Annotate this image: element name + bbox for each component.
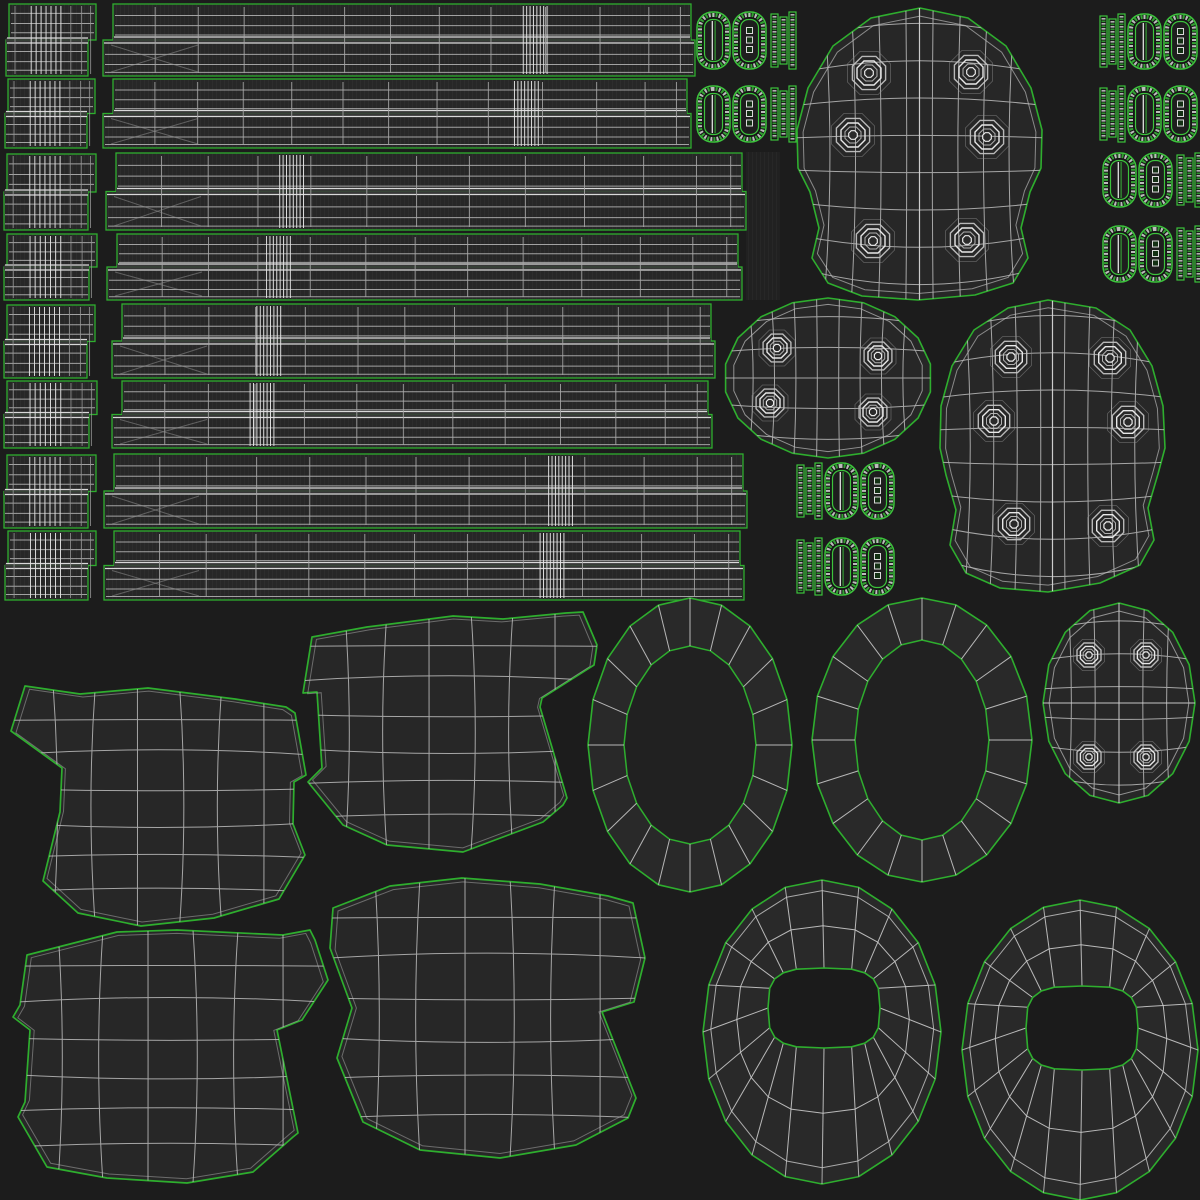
- strip-row-8: [5, 531, 744, 600]
- strip-row-7: [4, 454, 747, 528]
- ring-hole-island-2: [962, 900, 1198, 1200]
- hardware-cluster-5: [1103, 153, 1200, 207]
- bolted-oval-island-1: [726, 298, 931, 458]
- spoke-ring-island-2: [812, 598, 1032, 882]
- hardware-cluster-2: [697, 86, 796, 142]
- uv-texture-sheet: [0, 0, 1200, 1200]
- hardware-cluster-4: [1100, 86, 1197, 142]
- pad-island-3: [13, 930, 328, 1183]
- hardware-cluster-7: [797, 463, 894, 519]
- hardware-cluster-1: [697, 12, 796, 69]
- dome-island-1: [797, 8, 1042, 300]
- bolted-oval-island-2: [1043, 603, 1195, 803]
- pad-island-4: [330, 878, 645, 1158]
- dome-island-2: [940, 300, 1165, 592]
- uv-wireframe-canvas: [0, 0, 1200, 1200]
- hardware-cluster-6: [1103, 226, 1200, 282]
- ring-hole-island-1: [703, 880, 941, 1184]
- hardware-cluster-3: [1100, 14, 1197, 69]
- spoke-ring-island-1: [588, 598, 792, 892]
- hardware-cluster-8: [797, 538, 894, 595]
- texture-block-1: [746, 152, 780, 300]
